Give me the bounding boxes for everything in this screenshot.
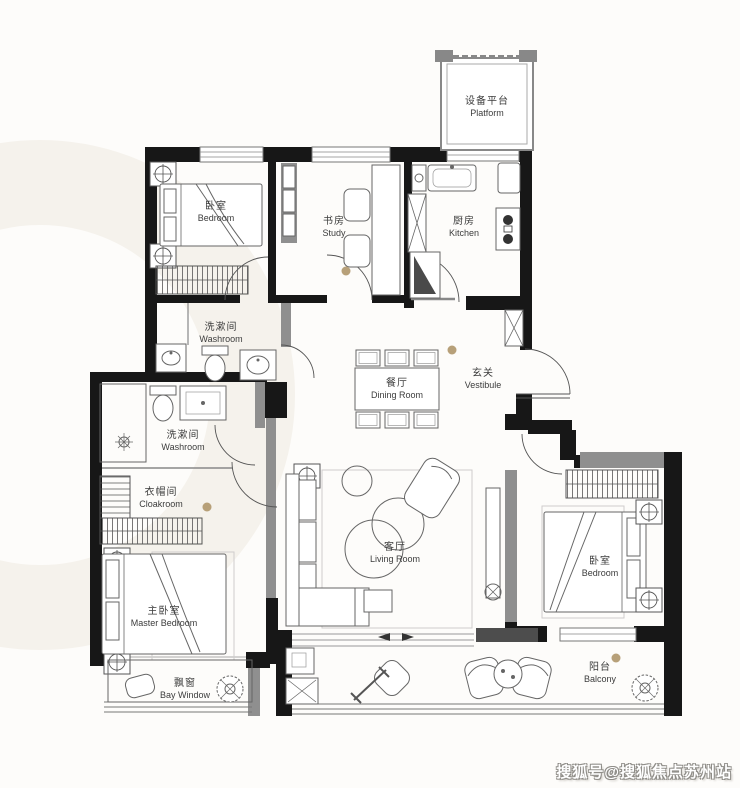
shower (100, 384, 146, 462)
desk-chair (344, 235, 370, 267)
svg-text:卧室: 卧室 (589, 554, 611, 567)
dining-set (355, 350, 439, 428)
room-label-balcony: 阳台 Balcony (584, 660, 617, 684)
svg-text:洗漱间: 洗漱间 (205, 320, 238, 333)
fridge (498, 163, 520, 193)
room-label-bay-window: 飘窗 Bay Window (160, 676, 211, 700)
basin (156, 344, 186, 372)
svg-text:阳台: 阳台 (589, 660, 611, 673)
plant (217, 676, 243, 702)
balcony-rails (292, 704, 664, 714)
tv-console (486, 488, 500, 598)
svg-text:衣帽间: 衣帽间 (145, 485, 178, 498)
bedroom-window (200, 147, 263, 162)
room-label-washroom-lower: 洗漱间 Washroom (161, 428, 204, 452)
bedroom-top-furniture (150, 162, 262, 294)
svg-text:客厅: 客厅 (384, 540, 406, 553)
washroom-lower-door (215, 425, 255, 465)
study-window (312, 147, 390, 162)
bedroom-right-window (560, 628, 636, 641)
svg-text:洗漱间: 洗漱间 (167, 428, 200, 441)
svg-text:Bedroom: Bedroom (582, 568, 619, 578)
room-label-kitchen: 厨房 Kitchen (449, 214, 479, 238)
svg-text:飘窗: 飘窗 (174, 676, 196, 689)
shower-head (115, 433, 133, 451)
svg-text:Balcony: Balcony (584, 674, 617, 684)
room-label-study: 书房 Study (322, 214, 346, 238)
room-label-living: 客厅 Living Room (370, 540, 420, 564)
svg-text:Vestibule: Vestibule (465, 380, 502, 390)
sliding-door-rails (292, 633, 474, 646)
svg-text:Cloakroom: Cloakroom (139, 499, 183, 509)
washer (286, 648, 314, 674)
sohu-watermark-text: 搜狐号@搜狐焦点苏州站 (556, 761, 732, 782)
svg-text:设备平台: 设备平台 (465, 94, 509, 107)
shoe-cabinet (505, 310, 523, 346)
desk (372, 165, 400, 295)
svg-text:Study: Study (322, 228, 346, 238)
svg-text:Kitchen: Kitchen (449, 228, 479, 238)
desk-chair (344, 189, 370, 221)
svg-text:Bedroom: Bedroom (198, 213, 235, 223)
svg-text:Dining Room: Dining Room (371, 390, 423, 400)
room-label-platform: 设备平台 Platform (465, 94, 509, 118)
svg-text:餐厅: 餐厅 (386, 376, 408, 389)
lounge-chair (401, 455, 464, 522)
toilet (150, 386, 176, 421)
svg-text:Washroom: Washroom (199, 334, 242, 344)
bed (102, 554, 226, 654)
washroom-upper-door (281, 345, 314, 378)
svg-text:主卧室: 主卧室 (148, 604, 181, 617)
sofa-back (286, 474, 299, 626)
bay-window-rails (104, 702, 252, 712)
cushion (124, 673, 156, 700)
svg-text:卧室: 卧室 (205, 199, 227, 212)
floorplan-page: 卧室 Bedroom 书房 Study 厨房 Kitchen 设备平台 Plat… (0, 0, 740, 788)
svg-text:Master Bedroom: Master Bedroom (131, 618, 198, 628)
room-label-vestibule: 玄关 Vestibule (465, 366, 502, 390)
round-table (494, 660, 522, 688)
side-table (364, 590, 392, 612)
svg-text:Bay Window: Bay Window (160, 690, 211, 700)
room-label-cloakroom: 衣帽间 Cloakroom (139, 485, 183, 509)
bedroom-right-furniture (542, 470, 662, 618)
svg-text:Washroom: Washroom (161, 442, 204, 452)
svg-text:Living Room: Living Room (370, 554, 420, 564)
svg-text:玄关: 玄关 (472, 366, 494, 379)
bedroom-right-door (522, 434, 562, 474)
room-label-washroom-upper: 洗漱间 Washroom (199, 320, 242, 344)
entry-door (516, 349, 570, 398)
svg-text:Platform: Platform (470, 108, 504, 118)
dining-table (355, 368, 439, 410)
basin (240, 350, 276, 380)
floorplan-drawing: 卧室 Bedroom 书房 Study 厨房 Kitchen 设备平台 Plat… (0, 0, 740, 788)
svg-text:厨房: 厨房 (453, 214, 475, 227)
plant (632, 675, 658, 701)
svg-text:书房: 书房 (323, 214, 345, 227)
sofa-chaise (299, 588, 355, 626)
